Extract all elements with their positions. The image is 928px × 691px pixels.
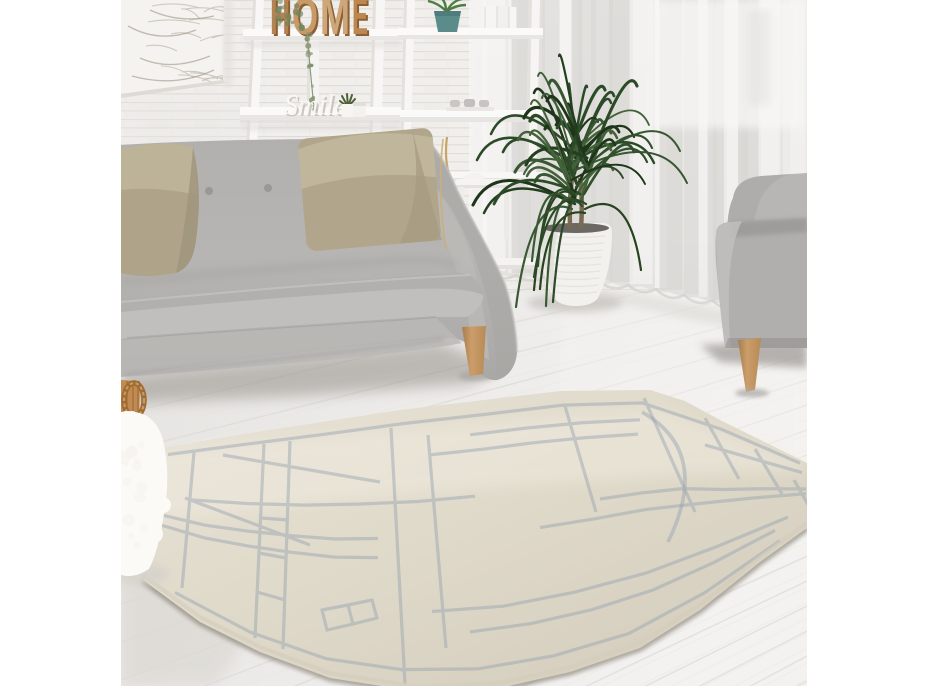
svg-text:E: E	[352, 0, 368, 46]
svg-text:Smile: Smile	[284, 90, 346, 121]
svg-text:M: M	[320, 0, 350, 46]
